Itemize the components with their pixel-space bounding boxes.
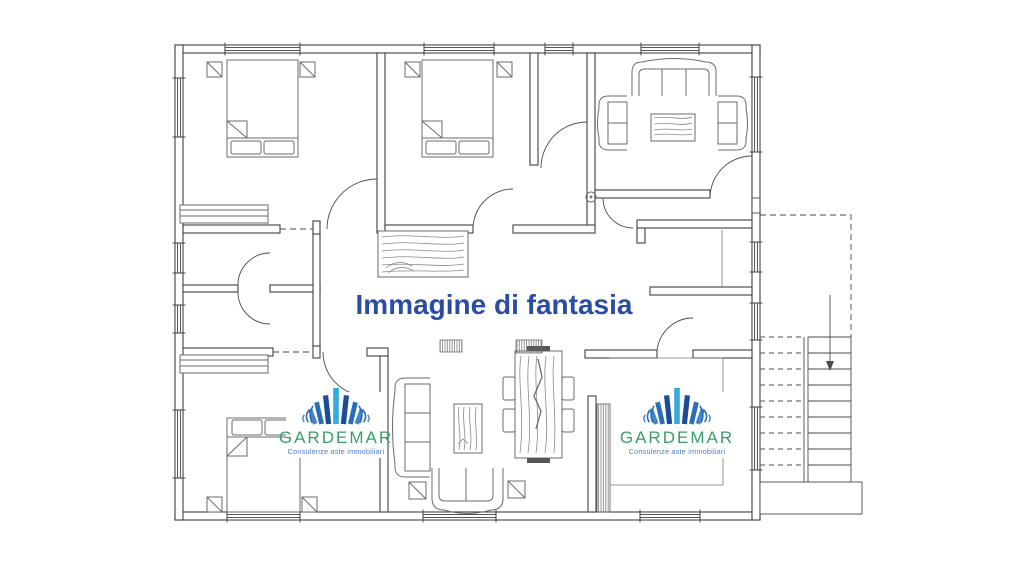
door-arc <box>710 156 752 198</box>
gardemar-tagline: Consulenze aste immobiliari <box>629 447 726 456</box>
floor-plan: GARDEMAR Consulenze aste immobiliari GAR… <box>0 0 1024 576</box>
nightstand <box>302 497 317 512</box>
coffee-table-small <box>454 404 482 453</box>
nightstand <box>207 497 222 512</box>
armchair <box>598 96 628 150</box>
radiator <box>597 404 610 512</box>
balcony-outline <box>760 215 851 337</box>
window <box>173 243 186 273</box>
sofa-three-seat <box>632 59 716 97</box>
window <box>173 78 186 137</box>
nightstand <box>405 62 420 77</box>
dining-chair <box>503 409 515 432</box>
door-arc <box>238 253 270 285</box>
dining-table <box>503 346 574 463</box>
dining-chair <box>562 409 574 432</box>
armchair <box>718 96 748 150</box>
hall-wardrobe <box>378 231 468 277</box>
sofa-vertical <box>393 378 431 477</box>
entry-opening <box>752 198 760 213</box>
dining-chair-end <box>516 340 542 353</box>
door-arc <box>327 179 377 229</box>
door-arc <box>603 198 633 228</box>
side-table <box>409 482 426 499</box>
coffee-table <box>651 114 695 141</box>
stair-landing <box>760 482 862 514</box>
gardemar-wordmark: GARDEMAR <box>279 428 393 447</box>
window <box>173 305 186 333</box>
side-table <box>508 481 525 498</box>
dining-chair <box>562 377 574 400</box>
door-arc <box>323 352 367 396</box>
window <box>173 410 186 478</box>
sofa-two-seat <box>432 468 503 514</box>
bed-1 <box>227 60 298 157</box>
gardemar-wordmark: GARDEMAR <box>620 428 734 447</box>
dresser <box>180 205 268 223</box>
door-arc <box>473 189 513 229</box>
gardemar-watermark-left: GARDEMAR Consulenze aste immobiliari <box>279 388 393 458</box>
door-arc <box>238 292 270 324</box>
bench <box>440 340 462 352</box>
dresser <box>180 355 268 373</box>
nightstand <box>497 62 512 77</box>
nightstand <box>207 62 222 77</box>
gardemar-watermark-right: GARDEMAR Consulenze aste immobiliari <box>620 388 734 458</box>
gardemar-tagline: Consulenze aste immobiliari <box>288 447 385 456</box>
bed-2 <box>422 60 493 157</box>
door-arc <box>657 318 693 354</box>
dining-chair <box>503 377 515 400</box>
staircase <box>760 215 862 514</box>
stair-treads <box>760 337 851 465</box>
nightstand <box>300 62 315 77</box>
door-arc <box>541 122 587 168</box>
floor-plan-image: GARDEMAR Consulenze aste immobiliari GAR… <box>0 0 1024 576</box>
fantasy-disclaimer: Immagine di fantasia <box>356 289 633 320</box>
direction-arrow <box>826 295 834 371</box>
